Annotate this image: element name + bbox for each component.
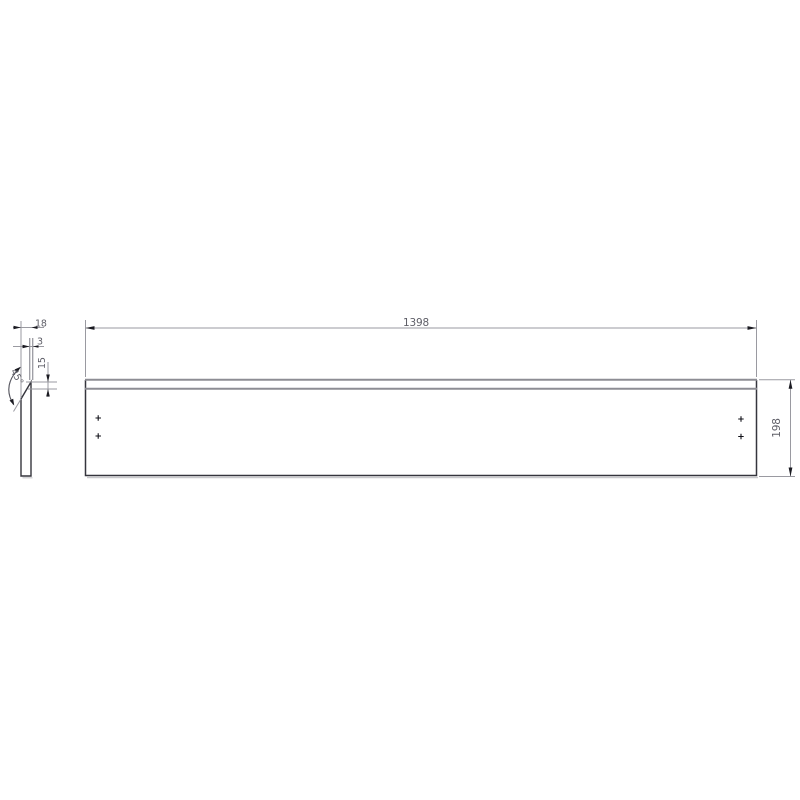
arrowhead [789, 468, 793, 477]
arrowhead [46, 389, 50, 397]
arrowhead [23, 345, 30, 348]
arrowhead [46, 375, 50, 383]
dim-label-flange-depth: 18 [35, 319, 47, 330]
dim-label-thickness: 3 [37, 337, 43, 348]
front-view [85, 380, 758, 478]
extension-line [14, 399, 22, 412]
side-profile-view [21, 382, 33, 478]
panel-outline [86, 380, 757, 476]
dim-height: 198 [759, 380, 795, 477]
arrowhead [14, 326, 22, 330]
drawing-canvas: 18 3 15 45° [0, 0, 800, 800]
arrowhead [748, 326, 757, 330]
arrowhead [10, 399, 15, 406]
profile-material-outline [21, 382, 31, 476]
dim-length: 1398 [86, 317, 757, 377]
arrowhead [789, 380, 793, 389]
technical-drawing: 18 3 15 45° [0, 0, 800, 800]
dim-label-length: 1398 [403, 317, 429, 329]
dim-label-bend-angle: 45° [8, 367, 25, 387]
dim-label-flange-height: 15 [37, 357, 48, 369]
dim-label-height: 198 [771, 418, 783, 437]
arrowhead [86, 326, 95, 330]
